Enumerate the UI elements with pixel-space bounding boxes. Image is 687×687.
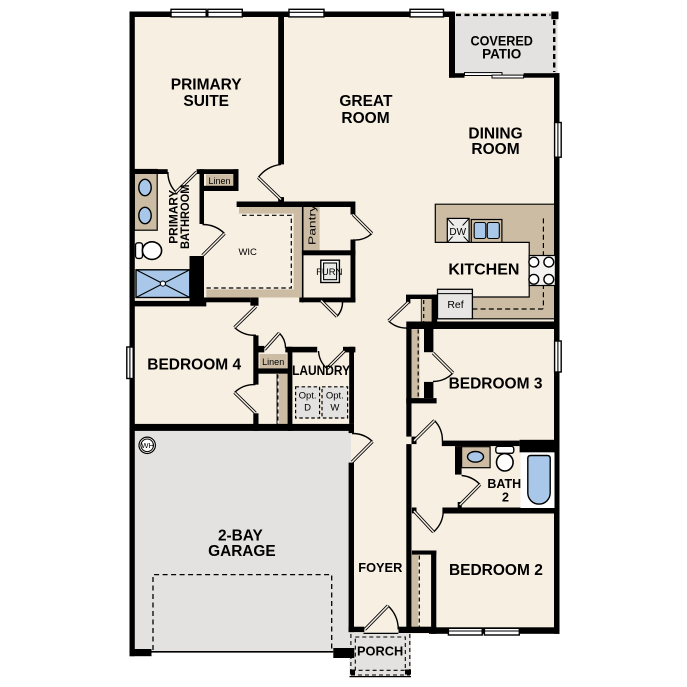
svg-text:BATH: BATH — [487, 477, 521, 491]
svg-text:ROOM: ROOM — [471, 141, 519, 158]
svg-text:BEDROOM 3: BEDROOM 3 — [449, 375, 543, 392]
svg-text:Linen: Linen — [208, 176, 230, 186]
svg-text:2-BAY: 2-BAY — [218, 527, 264, 544]
svg-text:FURN: FURN — [316, 267, 343, 278]
svg-text:BATHROOM: BATHROOM — [178, 184, 192, 249]
svg-text:SUITE: SUITE — [183, 93, 229, 110]
svg-text:Opt.: Opt. — [299, 391, 317, 402]
svg-text:BEDROOM 2: BEDROOM 2 — [449, 562, 543, 579]
svg-text:GARAGE: GARAGE — [208, 543, 276, 560]
svg-text:Opt.: Opt. — [326, 391, 344, 402]
svg-text:LAUNDRY: LAUNDRY — [292, 363, 350, 378]
svg-text:DINING: DINING — [468, 125, 522, 142]
svg-text:FOYER: FOYER — [358, 560, 402, 575]
svg-text:BEDROOM 4: BEDROOM 4 — [147, 357, 241, 374]
svg-text:2: 2 — [502, 490, 509, 504]
svg-text:GREAT: GREAT — [339, 93, 393, 110]
svg-text:KITCHEN: KITCHEN — [448, 262, 519, 279]
svg-text:PATIO: PATIO — [482, 47, 521, 62]
svg-text:Pantry: Pantry — [308, 205, 319, 245]
svg-text:WIC: WIC — [238, 247, 257, 258]
svg-text:DW: DW — [449, 227, 466, 238]
svg-text:Ref: Ref — [447, 299, 463, 311]
svg-text:PORCH: PORCH — [357, 644, 403, 659]
svg-text:ROOM: ROOM — [341, 110, 389, 127]
svg-text:D: D — [304, 403, 311, 414]
svg-text:WH: WH — [141, 441, 154, 450]
svg-text:PRIMARY: PRIMARY — [171, 77, 243, 94]
svg-text:Linen: Linen — [262, 357, 284, 367]
svg-text:W: W — [330, 403, 339, 414]
